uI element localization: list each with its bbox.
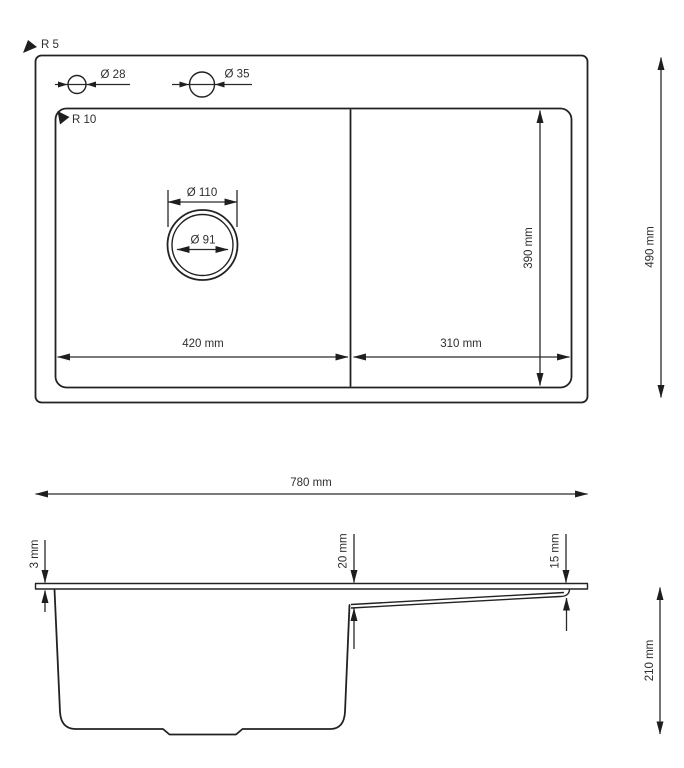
tap-hole-28-group: Ø 28 (55, 69, 130, 94)
dim-490: 490 mm (645, 58, 662, 398)
radius-callout-r10: R 10 (58, 111, 97, 126)
sink-rim-profile (36, 584, 588, 590)
tap-hole-28-label: Ø 28 (101, 69, 126, 81)
dim-20: 20 mm (338, 533, 355, 649)
dia110-label: Ø 110 (187, 187, 217, 199)
r10-leader-arrow-icon (58, 111, 70, 125)
sink-technical-drawing: R 5 R 10 Ø 28 Ø 35 (0, 0, 684, 768)
dim-15-label: 15 mm (550, 533, 562, 568)
tap-hole-28-left-arrow-icon (58, 82, 68, 88)
dim-780: 780 mm (36, 477, 588, 494)
r5-label: R 5 (41, 39, 59, 51)
dim-420: 420 mm (58, 338, 349, 357)
dim-210: 210 mm (644, 588, 660, 735)
dia91-label: Ø 91 (191, 235, 216, 247)
basin-inner-edge (56, 109, 572, 388)
radius-callout-r5: R 5 (23, 39, 59, 53)
sink-outer-edge-top-view (36, 56, 588, 403)
tap-hole-35-group: Ø 35 (172, 69, 252, 98)
bowl-profile (55, 590, 350, 735)
dim-420-label: 420 mm (182, 338, 224, 350)
tap-hole-35-label: Ø 35 (225, 69, 250, 81)
side-view: 780 mm 3 mm 20 mm 15 mm 2 (29, 477, 660, 735)
dim-210-label: 210 mm (644, 640, 656, 682)
drain-hole-group: Ø 110 Ø 91 (168, 187, 238, 280)
dim-3-label: 3 mm (29, 540, 41, 569)
technical-drawing-canvas: R 5 R 10 Ø 28 Ø 35 (0, 0, 684, 768)
dim-310: 310 mm (354, 338, 570, 357)
tap-hole-35-right-arrow-icon (215, 82, 225, 88)
r10-label: R 10 (72, 114, 96, 126)
dim-15: 15 mm (550, 533, 567, 631)
dim-390-label: 390 mm (523, 227, 535, 269)
top-view: R 5 R 10 Ø 28 Ø 35 (23, 39, 661, 403)
r5-leader-arrow-icon (23, 40, 37, 53)
dim-3: 3 mm (29, 540, 45, 612)
tap-hole-28-right-arrow-icon (87, 82, 97, 88)
dim-310-label: 310 mm (440, 338, 482, 350)
tap-hole-35-left-arrow-icon (180, 82, 190, 88)
dim-780-label: 780 mm (290, 477, 332, 489)
dim-390: 390 mm (523, 111, 540, 386)
dim-490-label: 490 mm (645, 226, 657, 268)
dim-20-label: 20 mm (338, 533, 350, 568)
